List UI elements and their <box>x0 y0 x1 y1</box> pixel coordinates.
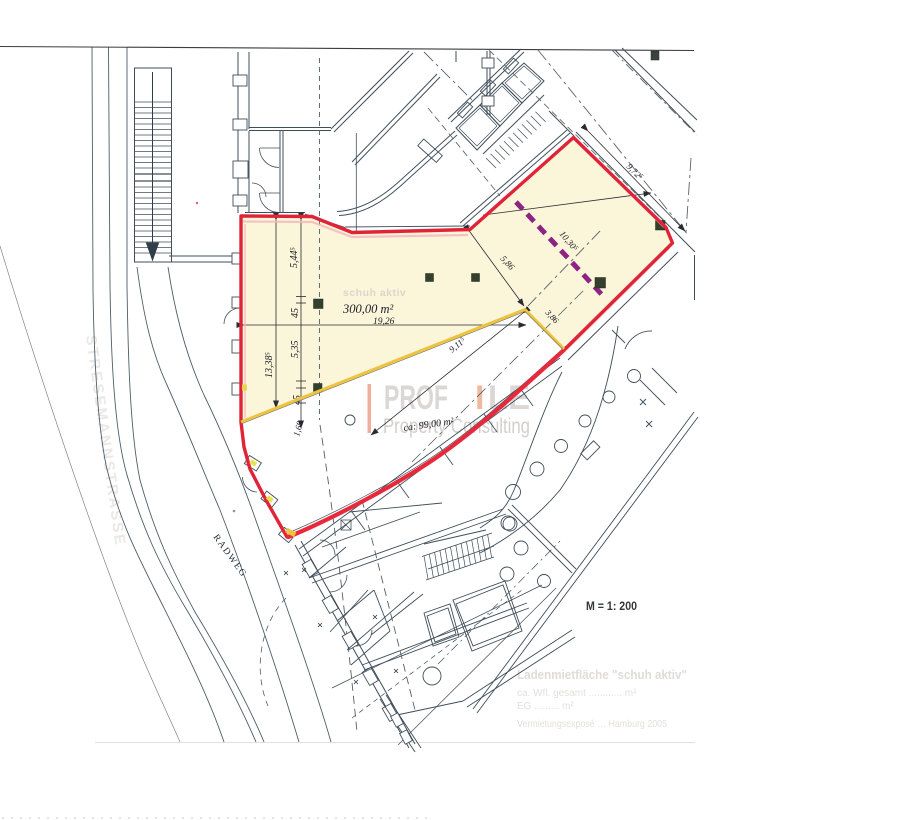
svg-text:Ladenmietfläche "schuh aktiv": Ladenmietfläche "schuh aktiv" <box>517 667 687 682</box>
svg-text:Vermietungsexposé … Hamburg 20: Vermietungsexposé … Hamburg 2005 <box>517 719 667 730</box>
svg-text:ca. Wfl. gesamt ............ m: ca. Wfl. gesamt ............ m² <box>517 688 637 699</box>
svg-text:19,26: 19,26 <box>373 317 395 327</box>
svg-text:300,00 m²: 300,00 m² <box>342 302 394 316</box>
svg-text:M = 1: 200: M = 1: 200 <box>586 601 637 613</box>
svg-text:PROF: PROF <box>384 379 448 417</box>
svg-text:EG ......... m²: EG ......... m² <box>517 701 574 712</box>
svg-text:schuh aktiv: schuh aktiv <box>343 287 406 299</box>
svg-text:45: 45 <box>290 308 301 318</box>
svg-text:I: I <box>475 379 484 417</box>
svg-text:5,35: 5,35 <box>290 341 301 359</box>
